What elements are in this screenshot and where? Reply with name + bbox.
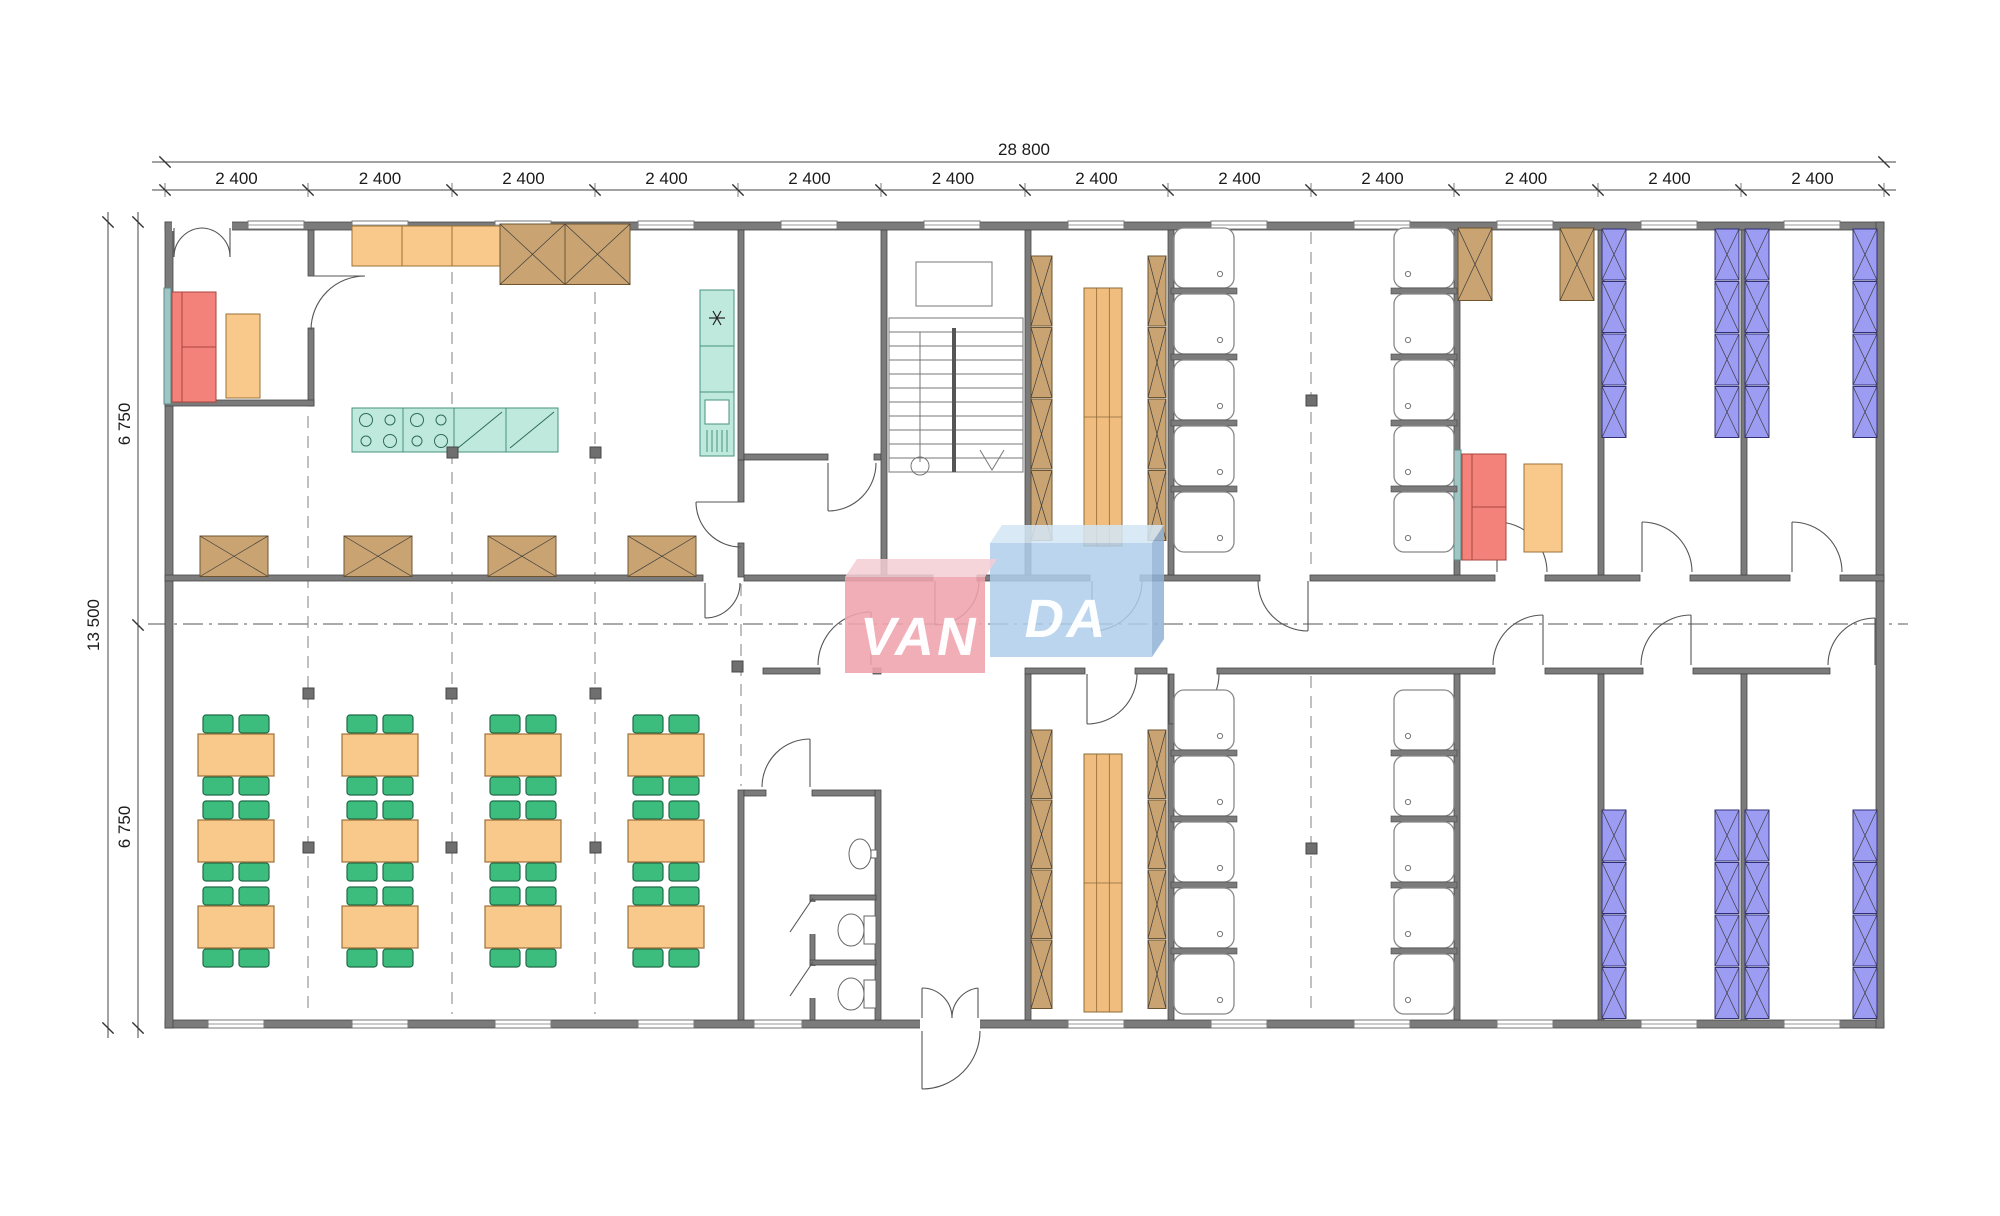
chair bbox=[669, 949, 699, 967]
shower-stall bbox=[1394, 888, 1454, 948]
shower-stall bbox=[1394, 954, 1454, 1014]
dining-set bbox=[198, 887, 274, 967]
bunk-bed bbox=[1715, 229, 1739, 438]
logo-vanda: VAN DA bbox=[845, 525, 1164, 673]
dim-module-labels: 2 4002 4002 4002 4002 4002 4002 4002 400… bbox=[215, 169, 1834, 188]
sauna-bench bbox=[1084, 288, 1122, 546]
chair bbox=[490, 949, 520, 967]
chair bbox=[239, 777, 269, 795]
toilets bbox=[838, 839, 877, 1010]
dining-table bbox=[342, 734, 418, 776]
chair bbox=[526, 863, 556, 881]
dim-module-label: 2 400 bbox=[1075, 169, 1118, 188]
window bbox=[924, 221, 980, 229]
window bbox=[1068, 1020, 1124, 1028]
chair bbox=[669, 887, 699, 905]
sofa-back-panel bbox=[1454, 450, 1461, 560]
column-post bbox=[590, 688, 601, 699]
lounge-west bbox=[164, 288, 260, 404]
shower-stall bbox=[1394, 822, 1454, 882]
dining-set bbox=[342, 887, 418, 967]
shower-stall-column bbox=[1391, 690, 1457, 1014]
window bbox=[495, 1020, 551, 1028]
dim-total-width: 28 800 bbox=[998, 140, 1050, 159]
dim-total-height: 13 500 bbox=[84, 599, 103, 651]
chair bbox=[239, 715, 269, 733]
side-table bbox=[226, 314, 260, 398]
window bbox=[1641, 1020, 1697, 1028]
dim-module-label: 2 400 bbox=[502, 169, 545, 188]
dim-module-label: 2 400 bbox=[1791, 169, 1834, 188]
chair bbox=[669, 715, 699, 733]
dining-table bbox=[342, 906, 418, 948]
dining-table bbox=[628, 820, 704, 862]
toilet-tank bbox=[864, 980, 876, 1008]
chair bbox=[633, 801, 663, 819]
dim-module-label: 2 400 bbox=[1648, 169, 1691, 188]
dining-set bbox=[628, 715, 704, 795]
chair bbox=[383, 777, 413, 795]
bunk-bed bbox=[1602, 229, 1626, 438]
locker bbox=[1458, 228, 1492, 301]
chair bbox=[490, 777, 520, 795]
column-post bbox=[447, 447, 458, 458]
chair bbox=[347, 887, 377, 905]
chair bbox=[239, 801, 269, 819]
dining-table bbox=[485, 820, 561, 862]
chair bbox=[669, 863, 699, 881]
wardrobe bbox=[200, 536, 268, 577]
window bbox=[1641, 221, 1697, 229]
side-table bbox=[1524, 464, 1562, 552]
toilet-bowl bbox=[838, 978, 864, 1010]
chair bbox=[383, 715, 413, 733]
sofa-back-panel bbox=[164, 288, 171, 404]
dining-set bbox=[342, 715, 418, 795]
shower-stall bbox=[1394, 756, 1454, 816]
logo-pink-box-top bbox=[845, 559, 997, 577]
window bbox=[1784, 221, 1840, 229]
washbasin-tap bbox=[871, 850, 877, 858]
shower-stall bbox=[1174, 228, 1234, 288]
window bbox=[638, 221, 694, 229]
kitchen-tall-unit bbox=[700, 290, 734, 456]
chair bbox=[526, 777, 556, 795]
chair bbox=[383, 863, 413, 881]
column-post bbox=[446, 842, 457, 853]
chair bbox=[526, 887, 556, 905]
kitchen-island bbox=[352, 408, 558, 452]
shower-stall bbox=[1394, 690, 1454, 750]
dim-module-label: 2 400 bbox=[1218, 169, 1261, 188]
dining-set bbox=[342, 801, 418, 881]
shower-stall bbox=[1174, 756, 1234, 816]
floor-plan-drawing: 28 800 2 4002 4002 4002 4002 4002 4002 4… bbox=[0, 0, 2000, 1216]
cabinet bbox=[565, 224, 630, 285]
wardrobe bbox=[488, 536, 556, 577]
chair bbox=[633, 887, 663, 905]
dim-module-label: 2 400 bbox=[359, 169, 402, 188]
window bbox=[1211, 1020, 1267, 1028]
window bbox=[248, 221, 304, 229]
dining-table bbox=[628, 734, 704, 776]
staircase bbox=[889, 262, 1023, 475]
chair bbox=[347, 777, 377, 795]
dining-table bbox=[485, 734, 561, 776]
lounge-east bbox=[1454, 450, 1562, 560]
shower-stall-column bbox=[1391, 228, 1457, 552]
shower-stall bbox=[1174, 294, 1234, 354]
dining-table bbox=[198, 820, 274, 862]
chair bbox=[490, 715, 520, 733]
locker-bank bbox=[1031, 256, 1052, 541]
chair bbox=[383, 887, 413, 905]
floor-plan-canvas: 28 800 2 4002 4002 4002 4002 4002 4002 4… bbox=[0, 0, 2000, 1216]
sauna-bench bbox=[1084, 754, 1122, 1012]
chair bbox=[633, 863, 663, 881]
column-post bbox=[732, 661, 743, 672]
shower-stall-column bbox=[1171, 228, 1237, 552]
bunk-bed bbox=[1745, 810, 1769, 1019]
chair bbox=[347, 949, 377, 967]
window bbox=[208, 1020, 264, 1028]
window bbox=[781, 221, 837, 229]
column-post bbox=[446, 688, 457, 699]
logo-text-van: VAN bbox=[855, 606, 985, 667]
shower-stall bbox=[1174, 954, 1234, 1014]
shower-stall bbox=[1394, 426, 1454, 486]
dining-set bbox=[485, 887, 561, 967]
chair bbox=[203, 801, 233, 819]
column-post bbox=[1306, 395, 1317, 406]
window bbox=[352, 1020, 408, 1028]
bunk-bed bbox=[1853, 810, 1877, 1019]
chair bbox=[203, 715, 233, 733]
bunk-bed bbox=[1853, 229, 1877, 438]
toilet-bowl bbox=[838, 914, 864, 946]
shower-stall bbox=[1174, 888, 1234, 948]
dining-set bbox=[628, 801, 704, 881]
logo-blue-box-side bbox=[1152, 525, 1164, 657]
shower-stall bbox=[1394, 294, 1454, 354]
dining-set bbox=[628, 887, 704, 967]
window bbox=[1354, 1020, 1410, 1028]
column-post bbox=[590, 447, 601, 458]
shower-stall bbox=[1174, 360, 1234, 420]
chair bbox=[347, 801, 377, 819]
dim-module-label: 2 400 bbox=[645, 169, 688, 188]
chair bbox=[490, 863, 520, 881]
wardrobe bbox=[628, 536, 696, 577]
shower-stall bbox=[1394, 492, 1454, 552]
washbasin bbox=[849, 839, 871, 869]
locker-bank bbox=[1031, 730, 1052, 1009]
chair bbox=[203, 887, 233, 905]
dining-set bbox=[485, 801, 561, 881]
chair bbox=[633, 949, 663, 967]
dim-module-label: 2 400 bbox=[788, 169, 831, 188]
chair bbox=[239, 863, 269, 881]
window bbox=[1497, 1020, 1553, 1028]
shower-stall bbox=[1174, 822, 1234, 882]
dining-set bbox=[485, 715, 561, 795]
dim-module-label: 2 400 bbox=[932, 169, 975, 188]
chair bbox=[490, 801, 520, 819]
chair bbox=[526, 949, 556, 967]
dim-module-label: 2 400 bbox=[1361, 169, 1404, 188]
window bbox=[1497, 221, 1553, 229]
wardrobe bbox=[344, 536, 412, 577]
cabinet bbox=[500, 224, 565, 285]
window bbox=[754, 1020, 802, 1028]
column-post bbox=[1306, 843, 1317, 854]
window bbox=[1784, 1020, 1840, 1028]
chair bbox=[669, 801, 699, 819]
chair bbox=[383, 801, 413, 819]
chair bbox=[669, 777, 699, 795]
shower-stall bbox=[1394, 228, 1454, 288]
dim-module-label: 2 400 bbox=[215, 169, 258, 188]
dining-table bbox=[628, 906, 704, 948]
window bbox=[638, 1020, 694, 1028]
chair bbox=[347, 715, 377, 733]
chair bbox=[633, 777, 663, 795]
column-post bbox=[303, 688, 314, 699]
dining-set bbox=[198, 715, 274, 795]
dim-module-label: 2 400 bbox=[1505, 169, 1548, 188]
shower-stall bbox=[1174, 426, 1234, 486]
dining-set bbox=[198, 801, 274, 881]
shower-stall bbox=[1174, 690, 1234, 750]
logo-text-da: DA bbox=[1020, 588, 1115, 649]
dining-table bbox=[198, 734, 274, 776]
chair bbox=[239, 949, 269, 967]
column-post bbox=[303, 842, 314, 853]
chair bbox=[383, 949, 413, 967]
kitchen-wall-cabinet bbox=[352, 226, 500, 266]
chair bbox=[203, 949, 233, 967]
bunk-bed bbox=[1715, 810, 1739, 1019]
column-post bbox=[590, 842, 601, 853]
shower-stall-column bbox=[1171, 690, 1237, 1014]
chair bbox=[203, 777, 233, 795]
chair bbox=[633, 715, 663, 733]
chair bbox=[526, 715, 556, 733]
chair bbox=[203, 863, 233, 881]
locker-bank bbox=[1148, 256, 1166, 541]
shower-stall bbox=[1174, 492, 1234, 552]
bunk-bed bbox=[1602, 810, 1626, 1019]
dim-half-top: 6 750 bbox=[115, 403, 134, 446]
dim-half-bottom: 6 750 bbox=[115, 806, 134, 849]
bunk-bed bbox=[1745, 229, 1769, 438]
window bbox=[1068, 221, 1124, 229]
toilet-tank bbox=[864, 916, 876, 944]
chair bbox=[490, 887, 520, 905]
locker bbox=[1560, 228, 1594, 301]
dining-table bbox=[342, 820, 418, 862]
chair bbox=[526, 801, 556, 819]
logo-blue-box-top bbox=[990, 525, 1164, 543]
dining-table bbox=[198, 906, 274, 948]
shower-stall bbox=[1394, 360, 1454, 420]
locker-bank bbox=[1148, 730, 1166, 1009]
dining-table bbox=[485, 906, 561, 948]
chair bbox=[239, 887, 269, 905]
chair bbox=[347, 863, 377, 881]
